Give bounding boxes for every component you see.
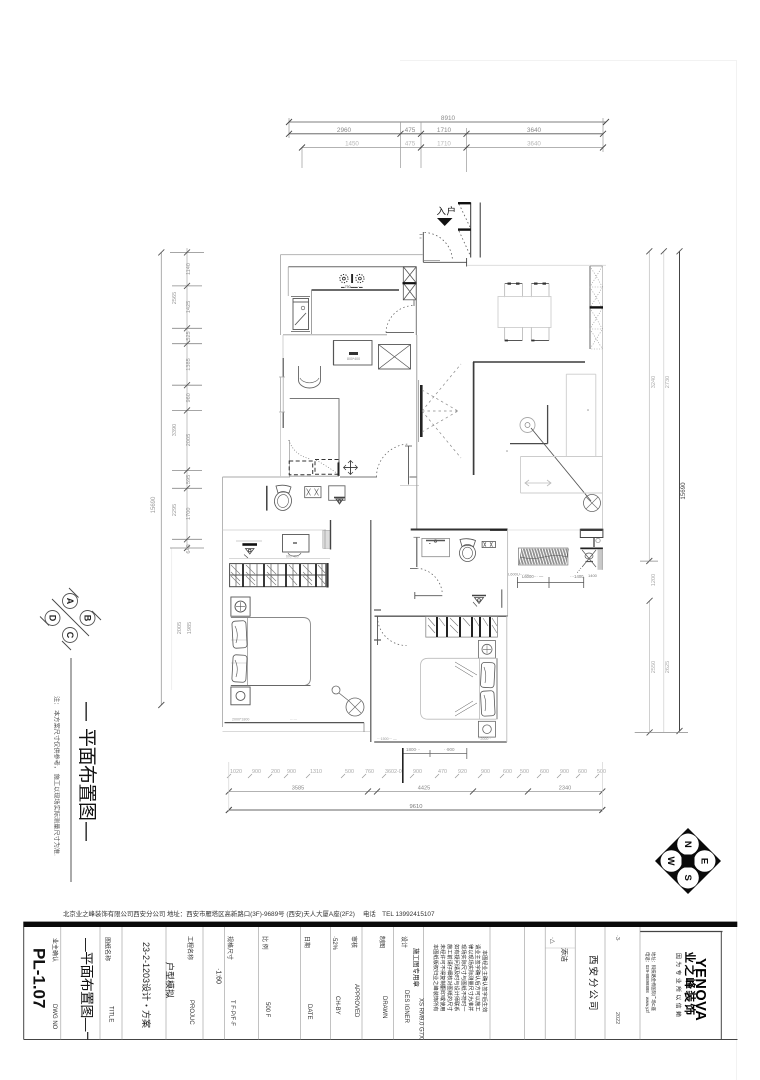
svg-text:1710: 1710 [437,127,452,134]
svg-text:600: 600 [578,769,587,775]
svg-text:3640: 3640 [527,127,542,134]
svg-text:律以现场实际测量尺寸为准并: 律以现场实际测量尺寸为准并 [467,944,475,1011]
svg-text:1800···: 1800··· [406,747,421,752]
svg-text:因为专业所以信赖: 因为专业所以信赖 [675,953,683,1019]
svg-text:DWG NO: DWG NO [51,1004,57,1030]
svg-text:YENOVA: YENOVA [692,958,708,1021]
svg-text:8910: 8910 [441,115,456,122]
svg-text:595: 595 [186,475,192,484]
svg-text:业主确认: 业主确认 [51,938,59,962]
svg-text:如有疑问请及时与设计师联系: 如有疑问请及时与设计师联系 [453,944,461,1011]
svg-text:—平面布置图—: —平面布置图— [79,938,94,1032]
svg-text:B: B [83,615,93,622]
svg-text:1710: 1710 [437,141,451,148]
svg-text:900: 900 [560,769,569,775]
svg-text:请业主签字确认后方可以施工: 请业主签字确认后方可以施工 [474,944,482,1011]
svg-text:·3·: ·3· [614,935,620,942]
svg-text:600: 600 [540,769,549,775]
svg-text:N: N [682,841,693,848]
svg-text:525: 525 [186,331,192,340]
svg-text:西安分公司: 西安分公司 [587,955,599,1013]
svg-text:图纸名称: 图纸名称 [104,937,112,961]
svg-text:2730: 2730 [665,376,671,388]
svg-text:2550: 2550 [651,661,657,673]
svg-text:添洁: 添洁 [560,948,569,962]
svg-text:北京业之峰装饰有限公司西安分公司 地址：西安市雁塔区高新路口: 北京业之峰装饰有限公司西安分公司 地址：西安市雁塔区高新路口(3F)-9689号… [63,909,435,918]
svg-text:日期: 日期 [303,936,311,948]
svg-text:—: — [76,702,97,721]
svg-text:1700: 1700 [186,508,192,520]
svg-text:900: 900 [481,769,490,775]
svg-text:比 例: 比 例 [261,936,269,950]
svg-text:1200: 1200 [651,574,657,586]
svg-text:C: C [65,632,75,639]
svg-text:DES IGNER: DES IGNER [403,990,409,1024]
svg-text:3390: 3390 [172,424,178,436]
svg-text:9610: 9610 [410,804,423,810]
svg-text:2625: 2625 [665,661,671,673]
svg-text:地址：科技路金桥国际广场C座: 地址：科技路金桥国际广场C座 [650,952,657,1012]
svg-text:···1500··· —: ···1500··· — [377,737,397,741]
svg-text:T F·P/F·F: T F·P/F·F [229,1000,235,1026]
svg-text:D: D [48,615,58,622]
svg-text:A: A [65,598,75,605]
svg-text:4425: 4425 [418,786,430,792]
svg-text:3640: 3640 [527,141,541,148]
svg-text:2022: 2022 [614,1012,620,1024]
svg-text:··900: ··900 [444,747,455,752]
svg-text:2005: 2005 [186,434,192,446]
svg-text:3585: 3585 [292,786,304,792]
svg-text:900: 900 [287,769,296,775]
svg-text:1400: 1400 [588,573,598,578]
svg-text:200: 200 [271,769,280,775]
svg-text:2000*1800: 2000*1800 [232,718,249,722]
svg-text:现场实际尺寸与图纸不符时一: 现场实际尺寸与图纸不符时一 [460,944,468,1011]
svg-text:S: S [682,875,693,881]
svg-text:2340: 2340 [559,786,571,792]
svg-text:工程名称: 工程名称 [186,936,194,960]
svg-text:注： 本方案尺寸仅供参考， 施工以现场实际测量尺寸为准.: 注： 本方案尺寸仅供参考， 施工以现场实际测量尺寸为准. [53,696,61,856]
svg-text:1985: 1985 [187,622,193,634]
svg-text:DRAWN: DRAWN [381,996,387,1018]
svg-text:施工图专用章: 施工图专用章 [412,948,421,988]
svg-text:470: 470 [438,769,447,775]
svg-text:1450: 1450 [345,141,359,148]
svg-text:DATE: DATE [306,1004,312,1020]
svg-text:500: 500 [345,769,354,775]
svg-text:·1:60: ·1:60 [215,968,222,984]
svg-text:475: 475 [405,127,416,134]
svg-text:······: ······ [290,718,297,722]
svg-text:1310: 1310 [310,769,322,775]
svg-text:户型模拟: 户型模拟 [165,962,176,998]
svg-text:L6000··· —: L6000··· — [522,574,544,579]
svg-text:电话：029-88898888 www.yzf: 电话：029-88898888 www.yzf [644,952,651,1013]
svg-text:规格尺寸: 规格尺寸 [226,936,234,960]
svg-text:1020: 1020 [230,769,242,775]
svg-text:2295: 2295 [172,504,178,516]
svg-text:···1400: ···1400 [570,574,584,579]
svg-text:15690: 15690 [680,482,687,500]
svg-text:960: 960 [186,393,192,402]
svg-text:500 F: 500 F [264,1002,270,1018]
svg-text:审核: 审核 [350,936,358,948]
svg-text:3602-0: 3602-0 [385,769,402,775]
svg-text:施工前请仔细核对图纸的尺寸: 施工前请仔细核对图纸的尺寸 [446,944,454,1011]
svg-text:未经许可不得复制翻印或使用: 未经许可不得复制翻印或使用 [439,944,447,1011]
svg-text:制图: 制图 [378,936,386,948]
svg-text:·52%: ·52% [331,936,337,951]
svg-text:·△: ·△ [549,937,555,944]
svg-text:··2000··: ··2000·· [478,737,491,741]
svg-text:TITLE: TITLE [108,1006,114,1022]
svg-text:—: — [76,822,97,841]
svg-text:XS RM9.0 G7X: XS RM9.0 G7X [418,998,424,1039]
svg-text:入户: 入户 [437,206,457,218]
svg-text:▬750▬▬·▬: ▬750▬▬·▬ [341,285,363,289]
svg-text:E: E [699,858,710,864]
svg-text:本图纸版权归业之峰装饰所有: 本图纸版权归业之峰装饰所有 [432,944,440,1011]
svg-text:900: 900 [413,769,422,775]
svg-text:PL-1.07: PL-1.07 [30,948,49,1008]
svg-text:2960: 2960 [337,127,352,134]
svg-text:2005: 2005 [177,622,183,634]
svg-text:800*400: 800*400 [347,357,360,361]
svg-text:500: 500 [597,769,606,775]
svg-text:920: 920 [458,769,467,775]
svg-text:15690: 15690 [151,496,157,513]
svg-text:1140: 1140 [186,263,192,275]
svg-text:CH-BY: CH-BY [334,996,340,1015]
svg-text:平面布置图: 平面布置图 [76,728,98,821]
svg-text:1425: 1425 [186,301,192,313]
svg-text:设计: 设计 [400,936,408,948]
svg-text:900: 900 [252,769,261,775]
svg-text:600*400: 600*400 [286,555,299,559]
svg-text:500: 500 [520,769,529,775]
svg-text:760: 760 [365,769,374,775]
svg-text:W: W [665,857,676,866]
svg-text:PROJUC: PROJUC [188,1000,194,1025]
svg-text:475: 475 [405,141,416,148]
svg-text:2565: 2565 [172,292,178,304]
svg-text:1385: 1385 [186,358,192,370]
svg-text:本图经业主确认签字后生效: 本图经业主确认签字后生效 [481,950,489,1013]
svg-text:3240: 3240 [651,376,657,388]
svg-text:23-2-1203设计・方案: 23-2-1203设计・方案 [141,942,152,1028]
svg-text:640: 640 [186,544,192,553]
svg-text:APPROVED: APPROVED [353,984,359,1018]
svg-text:600: 600 [503,769,512,775]
